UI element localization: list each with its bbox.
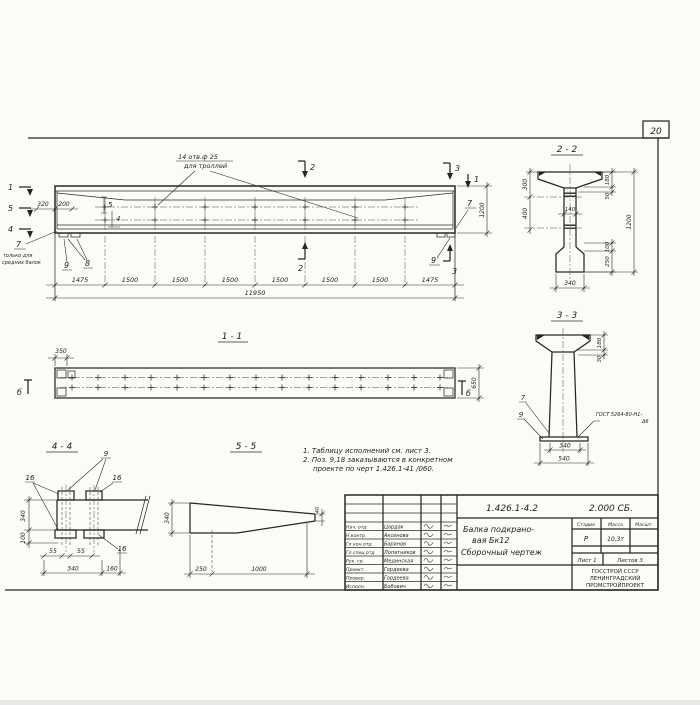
row-name: Цардак	[384, 525, 404, 531]
section-2-2: 2 - 2 140 300 400 180 50 100 250 1200 34…	[522, 145, 638, 292]
dim-seg-1: 1500	[122, 276, 139, 284]
cut-3-top-label: 3	[455, 164, 460, 173]
doc-title-line3: Сборочный чертеж	[461, 548, 543, 557]
dim-340: 340	[164, 512, 171, 524]
cut-2-top-label: 2	[310, 163, 315, 172]
pos-16-left: 16	[26, 474, 35, 482]
row-role: Гл.кон.отд	[346, 542, 372, 548]
org-line1: ГОССТРОЙ СССР	[591, 568, 639, 575]
row-name: Аксенова	[383, 533, 409, 539]
row-role: Рук. гр.	[346, 559, 364, 565]
col-scale-header: Масшт.	[635, 522, 653, 528]
row-name: Гордеева	[384, 567, 409, 573]
dim-540: 540	[558, 456, 570, 463]
pos-16-left-leaders	[25, 482, 59, 529]
end-notch	[68, 371, 75, 378]
dim-1200: 1200	[479, 202, 486, 217]
cut-marks-2-3: 2 2 3 3 1	[298, 161, 479, 276]
pos-7-leader	[519, 402, 549, 433]
height-dim-line	[457, 182, 492, 237]
cut-2-top-arrow	[302, 171, 308, 178]
right-dim-lower	[584, 239, 616, 276]
weld-note-line1: ГОСТ 5264-80-Н1-	[596, 412, 642, 418]
dim-seg-4: 1500	[272, 276, 289, 284]
flange-chamfer	[537, 335, 545, 340]
dim-30: 30	[597, 355, 603, 362]
dim-100: 100	[20, 532, 27, 544]
dim-340: 340	[559, 443, 571, 450]
section-center-lines	[524, 164, 582, 280]
cut-3-bottom-label: 3	[452, 267, 457, 276]
weld-leader	[578, 421, 600, 437]
plan-outline	[55, 368, 455, 398]
dim-340-bottom: 340	[67, 566, 79, 573]
note-line-1: 1. Таблицу исполнений см. лист 3.	[303, 447, 431, 455]
pos-9: 9	[104, 450, 109, 458]
note-line-3: проекте по черт 1.426.1-41 /060.	[313, 465, 434, 473]
view-mark-b-right: б	[466, 389, 471, 398]
dim-total: 11950	[245, 289, 266, 297]
dim-350-line	[48, 354, 74, 366]
position-leaders-right: 7 9	[429, 199, 476, 265]
pos-7-note2: средних балок	[2, 260, 41, 266]
elevation-view: 14 отв.ф 25 для троллей 1 5 4 2 2 3	[2, 153, 492, 301]
flange-chamfer	[581, 335, 589, 340]
view-4-4: 4 - 4 340 100 55 55 340 160 9 16 16 16	[20, 442, 150, 576]
pos-16-right-leader	[100, 482, 122, 492]
dim-340-side: 340	[20, 510, 27, 522]
dim-350: 350	[55, 348, 67, 355]
row-role: Нач. отд	[346, 525, 367, 531]
doc-title-line2: вая Бк12	[472, 536, 509, 545]
side-dim-lines	[24, 496, 58, 548]
section-3-3: 3 - 3 180 30 7 9 ГОСТ 5264-80-Н1- Δ6 340…	[517, 311, 649, 466]
dim-180: 180	[597, 337, 603, 348]
view-mark-b-left-flag	[24, 380, 32, 394]
date-scribbles	[444, 525, 452, 586]
pos-4: 4	[116, 215, 120, 223]
dim-650: 650	[471, 377, 478, 389]
dim-seg-7: 1475	[422, 276, 439, 284]
cut-5-arrow	[27, 210, 33, 217]
break-lines	[136, 496, 150, 534]
note-line-2: 2. Поз. 9,18 заказываются в конкретном	[303, 456, 453, 464]
end-notch	[444, 388, 453, 396]
dim-seg-2: 1500	[172, 276, 189, 284]
pos-8: 8	[85, 259, 90, 268]
sheets-label: Листов 3	[616, 558, 643, 564]
cut-2-bottom-label: 2	[298, 264, 303, 273]
plan-center-lines	[60, 378, 450, 388]
view-5-5-title: 5 - 5	[236, 442, 257, 452]
pos-9-leaders	[68, 458, 111, 490]
end-notch	[444, 370, 453, 378]
holes-note-line1: 14 отв.ф 25	[178, 153, 218, 161]
dim-180: 180	[605, 174, 611, 185]
hole-center-lines	[95, 207, 420, 220]
org-line2: ЛЕНИНГРАДСКИЙ	[590, 575, 641, 582]
cut-1-arrow	[27, 189, 33, 196]
taper-outline	[190, 503, 315, 533]
cut-1-right-arrow	[465, 181, 471, 188]
end-notch	[57, 370, 66, 378]
row-role: Н.контр.	[346, 533, 367, 539]
bolt-lines	[62, 487, 98, 546]
dim-seg-0: 1475	[72, 276, 89, 284]
dim-55-first: 55	[49, 548, 57, 555]
stage-value: Р	[584, 535, 589, 543]
height-dimension: 1200	[457, 182, 492, 237]
plan-marks-row1	[69, 375, 443, 381]
row-name: Гордеева	[384, 576, 409, 582]
dim-250: 250	[605, 256, 611, 267]
doc-number: 1.426.1-4.2	[486, 504, 538, 514]
dim-200: 200	[58, 201, 70, 208]
view-mark-b-left: б	[17, 388, 22, 397]
cut-5-label: 5	[8, 204, 13, 213]
view-mark-b-right-flag	[458, 381, 466, 395]
dim-400: 400	[522, 208, 529, 220]
section-3-3-title: 3 - 3	[557, 311, 578, 321]
cut-1-right-label: 1	[474, 175, 479, 184]
pos-16-bottom: 16	[118, 545, 127, 553]
view-1-1-title: 1 - 1	[222, 332, 242, 342]
dim-340: 340	[564, 280, 576, 287]
row-name: Баранов	[384, 542, 406, 548]
chord-bar	[57, 500, 148, 530]
pos-16-right: 16	[113, 474, 122, 482]
bottom-plate	[55, 530, 76, 538]
notes: 1. Таблицу исполнений см. лист 3. 2. Поз…	[303, 447, 453, 473]
cut-1-label: 1	[8, 183, 13, 192]
drawing-sheet: 20 14 отв.ф 25 для троллей 1 5 4	[0, 0, 700, 700]
col-mass-header: Масса	[608, 522, 623, 528]
cut-2-bottom-arrow	[302, 242, 308, 249]
pos-9-right: 9	[431, 256, 436, 265]
pos-7-right: 7	[467, 199, 473, 208]
row-name: Мединская	[384, 559, 413, 565]
signature-rows: Нач. отд Цардак Н.контр. Аксенова Гл.кон…	[346, 525, 452, 591]
dim-340-line	[168, 499, 190, 537]
pos-7-left: 7	[16, 240, 22, 249]
row-name: Бобович	[384, 584, 406, 590]
title-block: 1.426.1-4.2 2.000 СБ. Балка подкрано- ва…	[345, 495, 658, 590]
dim-50: 50	[605, 192, 611, 199]
cut-marks-left: 1 5 4	[8, 183, 33, 238]
row-name: Лопатников	[383, 550, 416, 556]
view-5-5: 5 - 5 340 250 1000 40	[164, 442, 325, 578]
row-role: Исполн.	[346, 584, 365, 590]
cut-4-arrow	[27, 231, 33, 238]
pos-5: 5	[108, 201, 113, 209]
mass-value: 10,3т	[607, 536, 624, 543]
dim-300: 300	[522, 179, 529, 191]
sole-plate	[540, 437, 588, 441]
dim-1000: 1000	[251, 566, 266, 573]
page-number: 20	[650, 127, 662, 137]
dim-40: 40	[315, 507, 321, 513]
drawing-canvas: 20 14 отв.ф 25 для троллей 1 5 4	[0, 0, 700, 700]
org-line3: ПРОМСТРОЙПРОЕКТ	[586, 582, 645, 589]
row-role: Провер.	[346, 576, 365, 582]
pos-7-right-leader	[456, 208, 476, 228]
dim-100: 100	[605, 241, 611, 252]
doc-code: 2.000 СБ.	[589, 504, 633, 514]
pos-7: 7	[521, 394, 526, 402]
cut-3-bottom-arrow	[447, 244, 453, 251]
grid-lines	[105, 197, 405, 288]
dim-140: 140	[565, 207, 576, 213]
row-role: Проект.	[346, 567, 365, 573]
end-notch	[57, 388, 66, 396]
dim-seg-6: 1500	[372, 276, 389, 284]
view-1-1: 1 - 1 350 650 б б	[17, 332, 484, 402]
cut-3-top-arrow	[447, 173, 453, 180]
plan-marks-row2	[69, 385, 443, 391]
end-dimensions: 320 200 5 4	[30, 197, 120, 227]
sheet-label: Лист 1	[576, 558, 596, 564]
row-role: Гл.спец.отд	[346, 550, 375, 556]
pos-9-leader	[517, 419, 543, 439]
left-dim-lines	[526, 168, 538, 234]
dim-160: 160	[106, 566, 118, 573]
doc-title-line1: Балка подкрано-	[463, 525, 534, 534]
cut-4-label: 4	[8, 225, 13, 234]
dim-250: 250	[195, 566, 207, 573]
pos-7-note1: только для	[3, 253, 32, 259]
pos-5-mark	[101, 197, 107, 213]
holes-note-line2: для троллей	[183, 162, 227, 170]
dim-55-second: 55	[77, 548, 85, 555]
section-2-2-title: 2 - 2	[557, 145, 578, 155]
dim-1200: 1200	[626, 214, 633, 229]
pos-9-left: 9	[64, 261, 69, 270]
col-stage-header: Стадия	[577, 522, 595, 528]
dim-320: 320	[37, 201, 49, 208]
dim-seg-5: 1500	[322, 276, 339, 284]
view-4-4-title: 4 - 4	[52, 442, 73, 452]
dim-seg-3: 1500	[222, 276, 239, 284]
weld-note-line2: Δ6	[641, 419, 649, 425]
pos-9: 9	[519, 411, 524, 419]
